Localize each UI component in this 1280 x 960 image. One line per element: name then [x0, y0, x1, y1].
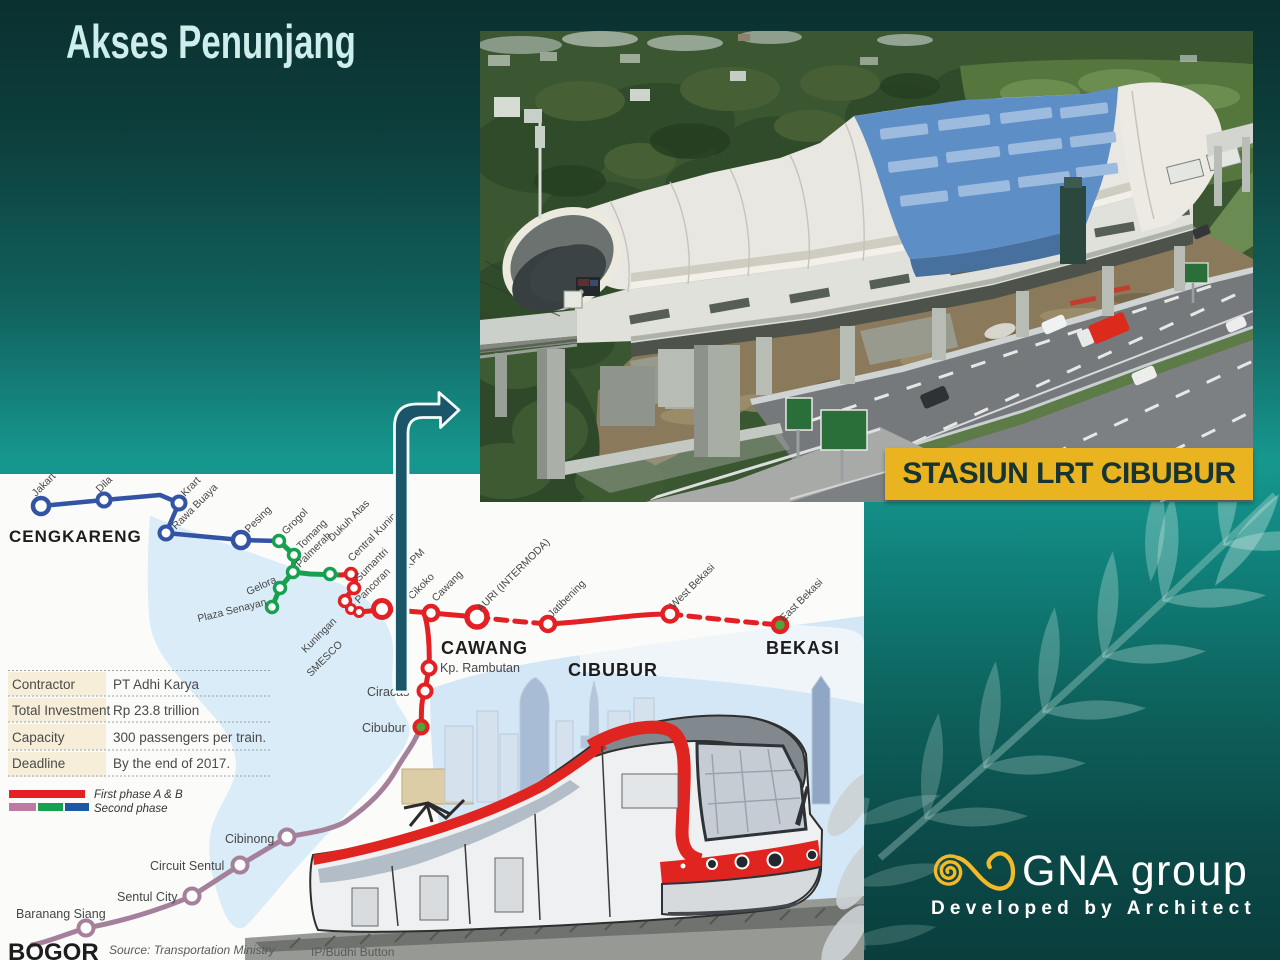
svg-text:Baranang Siang: Baranang Siang	[16, 907, 106, 921]
svg-text:Cibinong: Cibinong	[225, 832, 274, 846]
svg-text:CIBUBUR: CIBUBUR	[568, 660, 658, 680]
svg-text:Second phase: Second phase	[94, 803, 168, 815]
svg-text:BOGOR: BOGOR	[8, 939, 99, 960]
svg-text:Contractor: Contractor	[12, 677, 76, 692]
svg-text:Total Investment: Total Investment	[12, 703, 111, 718]
svg-text:IP/Budhi Button: IP/Budhi Button	[311, 945, 394, 959]
svg-text:300 passengers per train.: 300 passengers per train.	[113, 730, 266, 745]
svg-text:Cibubur: Cibubur	[362, 721, 406, 735]
svg-text:BEKASI: BEKASI	[766, 638, 840, 658]
svg-text:By the end of 2017.: By the end of 2017.	[113, 756, 230, 771]
svg-text:CENGKARENG: CENGKARENG	[9, 527, 142, 546]
svg-text:Circuit Sentul: Circuit Sentul	[150, 859, 224, 873]
svg-text:PT Adhi Karya: PT Adhi Karya	[113, 677, 200, 692]
svg-text:Sentul City: Sentul City	[117, 890, 178, 904]
svg-text:First phase A & B: First phase A & B	[94, 789, 183, 801]
svg-text:Capacity: Capacity	[12, 730, 65, 745]
svg-text:Rp 23.8 trillion: Rp 23.8 trillion	[113, 703, 199, 718]
svg-text:Source: Transportation Ministr: Source: Transportation Ministry	[109, 943, 276, 957]
svg-text:Deadline: Deadline	[12, 756, 65, 771]
